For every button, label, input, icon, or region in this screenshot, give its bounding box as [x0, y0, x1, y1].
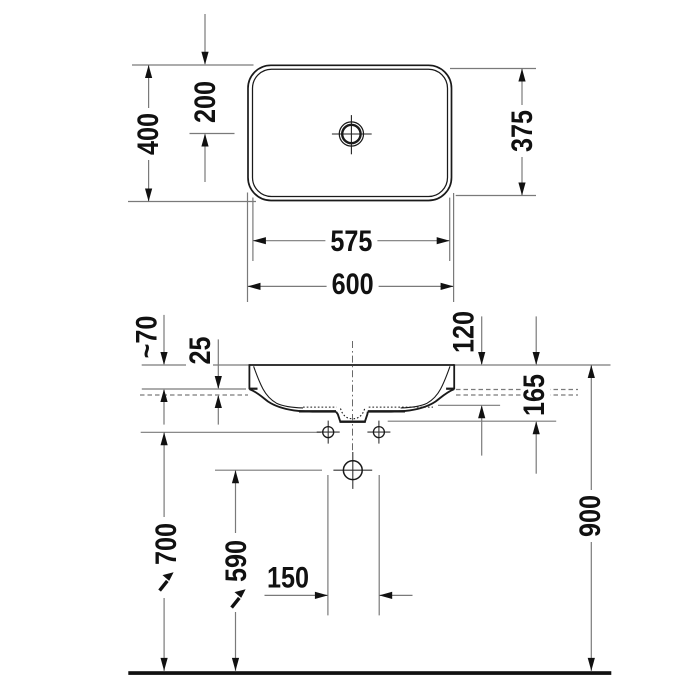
- svg-text:600: 600: [332, 267, 374, 301]
- svg-text:400: 400: [131, 113, 165, 155]
- svg-text:~70: ~70: [129, 316, 163, 359]
- svg-text:590: 590: [219, 540, 253, 582]
- svg-text:700: 700: [149, 523, 183, 565]
- svg-text:575: 575: [330, 224, 372, 258]
- svg-text:25: 25: [183, 336, 217, 364]
- svg-text:150: 150: [267, 561, 309, 595]
- svg-text:165: 165: [517, 374, 551, 416]
- svg-text:120: 120: [447, 311, 481, 353]
- svg-text:375: 375: [505, 110, 539, 152]
- svg-text:900: 900: [573, 495, 607, 537]
- svg-text:200: 200: [188, 81, 222, 123]
